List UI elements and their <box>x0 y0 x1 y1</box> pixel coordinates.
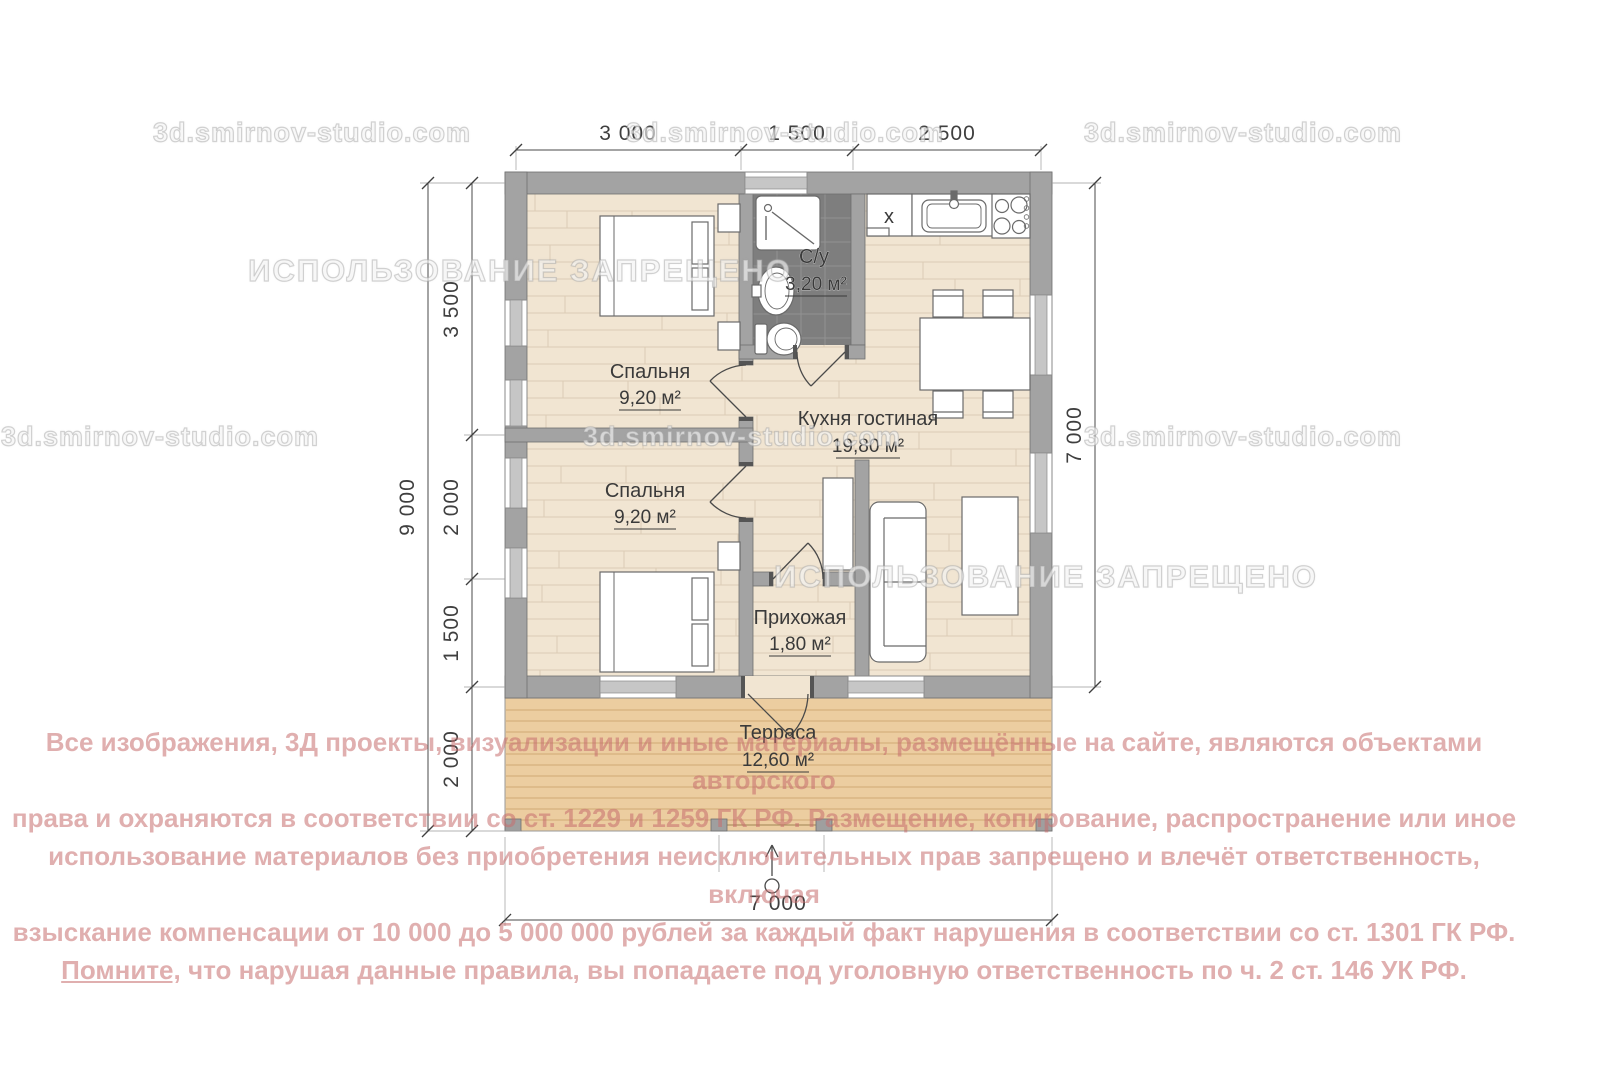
window <box>505 458 527 508</box>
sofa <box>870 502 926 662</box>
terrace-post <box>1036 819 1052 831</box>
coffee-table <box>962 497 1018 615</box>
terrace-post <box>816 819 832 831</box>
window <box>505 300 527 346</box>
shower <box>756 196 820 250</box>
room-label-bedroom2: Спальня <box>605 480 685 502</box>
wall-interior <box>851 194 865 345</box>
chair <box>983 391 1013 418</box>
kitchen-sink <box>912 191 996 236</box>
room-area-terrace: 12,60 м² <box>742 750 814 771</box>
fridge-symbol: x <box>884 206 894 228</box>
window <box>1030 453 1052 533</box>
room-area-bedroom2: 9,20 м² <box>614 507 676 528</box>
nightstand <box>718 204 740 232</box>
dim-top-1: 3 000 <box>599 122 657 145</box>
floor-plan-drawing: Спальня 9,20 м² Спальня 9,20 м² С/у 3,20… <box>0 0 1620 1080</box>
entrance-arrow <box>765 845 779 893</box>
window <box>600 676 676 698</box>
nightstand <box>718 542 740 570</box>
room-label-bathroom: С/у <box>799 246 829 268</box>
dim-left-1: 3 500 <box>440 280 463 338</box>
terrace-post <box>711 819 727 831</box>
room-area-hallway: 1,80 м² <box>769 634 831 655</box>
nightstand <box>718 322 740 350</box>
room-label-terrace: Терраса <box>740 722 818 744</box>
room-area-kitchen: 19,80 м² <box>832 436 904 457</box>
floor-plan-page: Спальня 9,20 м² Спальня 9,20 м² С/у 3,20… <box>0 0 1620 1080</box>
front-door-opening <box>745 676 810 698</box>
wall-interior <box>505 428 753 442</box>
stove <box>992 194 1030 238</box>
wall-interior <box>739 194 753 365</box>
room-label-hallway: Прихожая <box>754 607 847 629</box>
dim-right: 7 000 <box>1063 406 1086 464</box>
bed <box>600 216 714 316</box>
wardrobe <box>823 478 853 570</box>
window <box>505 380 527 426</box>
window <box>1030 295 1052 375</box>
dim-bottom: 7 000 <box>749 892 807 915</box>
chair <box>933 290 963 317</box>
dim-left-2: 2 000 <box>440 478 463 536</box>
window <box>505 548 527 598</box>
dining-table <box>920 318 1030 390</box>
wall-exterior-right <box>1030 172 1052 698</box>
chair <box>983 290 1013 317</box>
room-label-bedroom1: Спальня <box>610 361 690 383</box>
dim-top-3: 2 500 <box>918 122 976 145</box>
bed <box>600 572 714 672</box>
wall-interior <box>739 518 753 676</box>
window <box>745 172 807 194</box>
dim-left-total: 9 000 <box>396 478 419 536</box>
room-area-bedroom1: 9,20 м² <box>619 388 681 409</box>
dim-left-3: 1 500 <box>440 604 463 662</box>
dim-top-2: 1 500 <box>768 122 826 145</box>
window <box>848 676 924 698</box>
room-label-kitchen: Кухня гостиная <box>798 408 938 430</box>
dim-left-4: 2 000 <box>440 730 463 788</box>
wall-interior <box>855 460 869 676</box>
terrace-post <box>505 819 521 831</box>
room-area-bathroom: 3,20 м² <box>785 274 847 295</box>
